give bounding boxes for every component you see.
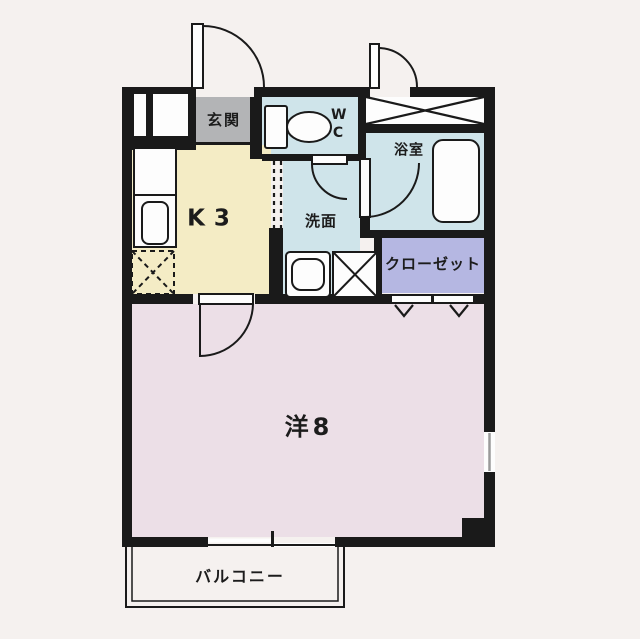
- storage-box: [366, 97, 484, 124]
- floorplan-canvas: 玄関 WC 浴室 K3 洗面 クローゼット 洋8 バルコニー: [0, 0, 640, 639]
- wc-label: WC: [331, 106, 345, 142]
- shoe-cabinet-small: [133, 93, 147, 137]
- genkan-label: 玄関: [207, 112, 241, 129]
- toilet-tank: [265, 106, 287, 148]
- window-right-wall: [484, 432, 495, 472]
- balcony-label: バルコニー: [195, 568, 285, 586]
- shoe-cabinet-large: [152, 93, 189, 137]
- closet-label: クローゼット: [385, 256, 481, 273]
- kitchen-sink: [142, 202, 168, 244]
- toilet-bowl: [287, 112, 331, 142]
- main-room-label: 洋8: [285, 414, 334, 440]
- washing-machine-space: [333, 252, 377, 297]
- bath-label: 浴室: [394, 143, 424, 158]
- entrance-door: [192, 24, 264, 88]
- open-partition-dashed: [274, 161, 281, 228]
- bathtub: [433, 140, 479, 222]
- storage-door: [370, 44, 417, 88]
- washbasin: [286, 252, 330, 297]
- kitchen-label: K3: [187, 206, 239, 231]
- washroom-label: 洗面: [305, 213, 337, 230]
- floorplan-graphic: [0, 0, 640, 639]
